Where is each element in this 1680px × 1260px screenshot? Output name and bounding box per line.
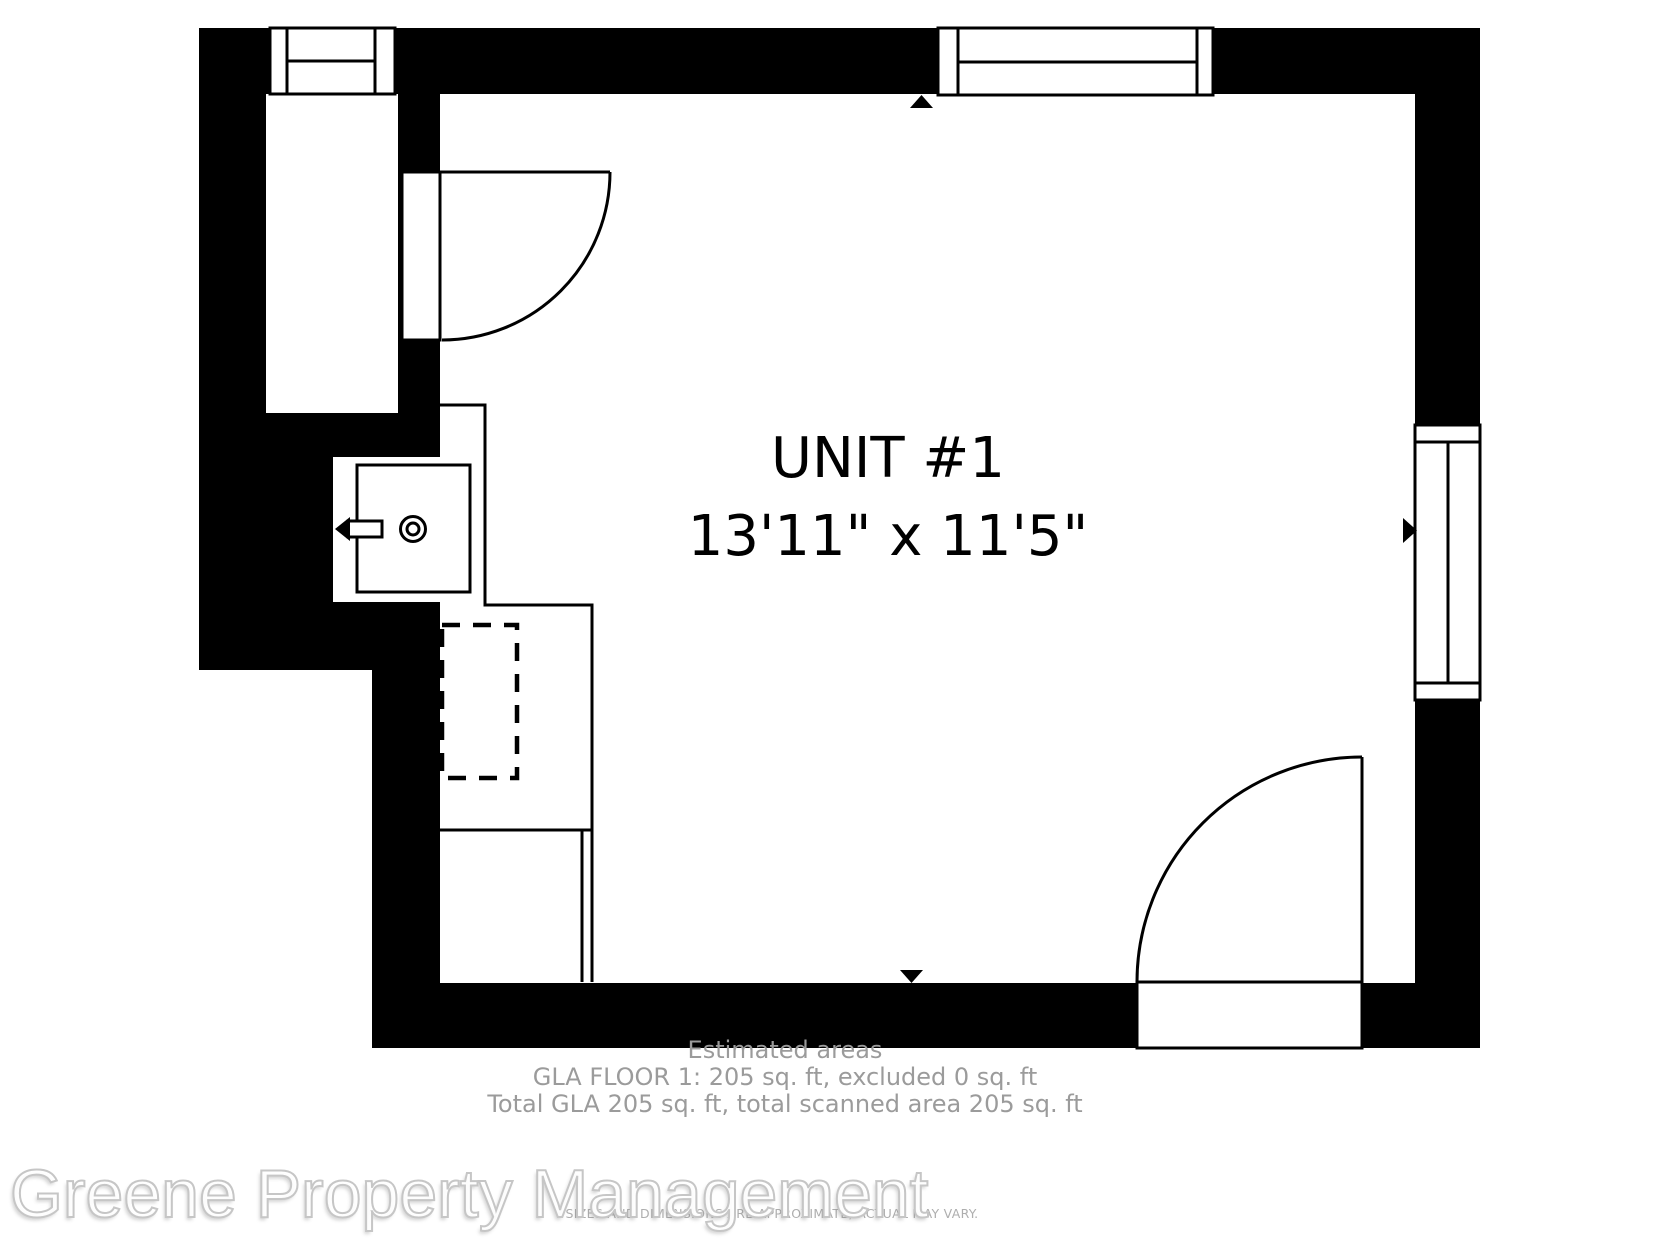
closet-door	[402, 172, 610, 340]
wall-lower-left	[372, 670, 440, 983]
estimated-areas-title: Estimated areas	[487, 1037, 1082, 1064]
sink-drain-inner	[407, 523, 419, 535]
gla-floor-line: GLA FLOOR 1: 205 sq. ft, excluded 0 sq. …	[487, 1064, 1082, 1091]
faucet-stem	[348, 521, 382, 537]
entry-door	[1137, 757, 1362, 1048]
unit-dimensions: 13'11" x 11'5"	[688, 498, 1088, 576]
estimated-areas-block: Estimated areas GLA FLOOR 1: 205 sq. ft,…	[487, 1037, 1082, 1118]
door-opening	[402, 172, 440, 340]
top-wall-marker-icon	[910, 95, 933, 108]
top-left-window	[270, 28, 395, 94]
unit-name: UNIT #1	[688, 420, 1088, 498]
door-opening	[1137, 982, 1362, 1048]
dashed-appliance-outline	[442, 625, 517, 778]
total-gla-line: Total GLA 205 sq. ft, total scanned area…	[487, 1091, 1082, 1118]
wall-left	[199, 28, 266, 670]
right-window	[1415, 425, 1480, 700]
door-swing-arc	[1137, 757, 1362, 982]
door-swing-arc	[442, 172, 610, 340]
top-right-window	[938, 28, 1213, 95]
bottom-wall-marker-icon	[900, 970, 923, 983]
room-label: UNIT #1 13'11" x 11'5"	[688, 420, 1088, 576]
company-watermark: Greene Property Management	[10, 1160, 929, 1228]
floorplan-page: UNIT #1 13'11" x 11'5" Estimated areas G…	[0, 0, 1680, 1260]
